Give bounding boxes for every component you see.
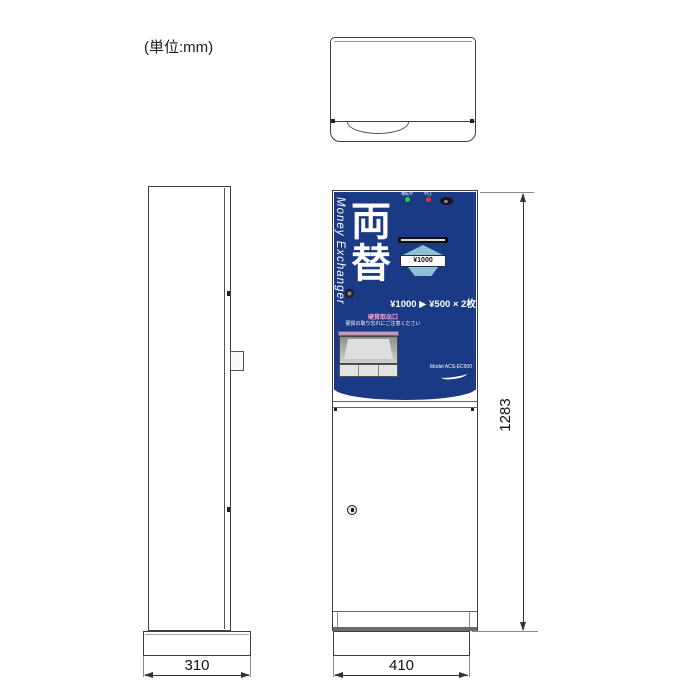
exchange-title-text: 両替 (347, 200, 387, 290)
panel-button-center (348, 292, 351, 295)
dim-1283-ext-bottom (472, 631, 538, 632)
dim-1283-value: 1283 (497, 393, 515, 437)
door-keyhole-slot (351, 508, 354, 512)
bill-slot-slit (401, 239, 445, 241)
dim-1283-arrow-top (520, 193, 526, 202)
coin-outlet-note: 硬貨の取り忘れにご注意ください (333, 320, 433, 327)
dim-410-value: 410 (333, 657, 470, 674)
led-stop-indicator (426, 197, 431, 202)
exchange-rate-text: ¥1000 ▶ ¥500 × 2枚 (388, 296, 478, 310)
side-view-latch-mark-upper (227, 291, 230, 296)
door-corner-mark-right (471, 408, 474, 411)
side-view-body-outline (148, 186, 231, 631)
dim-1283-line (523, 194, 524, 630)
door-bottom-line (333, 611, 477, 612)
coin-tray-opening (344, 339, 393, 359)
top-view-band-tick-left (331, 119, 335, 123)
dim-310-arrow-left (144, 672, 153, 678)
dim-1283-arrow-bottom (520, 622, 526, 631)
front-base-outline (333, 631, 470, 656)
door-corner-mark-left (334, 408, 337, 411)
plinth-left-line (337, 612, 338, 627)
dim-410-line (335, 675, 468, 676)
side-view-latch-mark-lower (227, 507, 230, 512)
bill-label-plate: ¥1000 (400, 255, 446, 267)
dim-310-arrow-right (241, 672, 250, 678)
dim-410-arrow-left (334, 672, 343, 678)
side-view-coin-tray-protrusion (230, 351, 244, 371)
panel-lock-keyway (444, 200, 448, 203)
plinth-right-line (469, 612, 470, 627)
front-mid-band (333, 401, 477, 408)
dim-410-arrow-right (459, 672, 468, 678)
side-view-base-top-line (145, 634, 249, 635)
coin-tray-cell-divider-2 (378, 365, 379, 376)
coin-tray-cells (339, 364, 398, 377)
side-view-front-edge-line (224, 188, 225, 629)
led-run-indicator (405, 197, 410, 202)
technical-drawing-canvas: (単位:mm) 310 Money Exchanger (0, 0, 700, 700)
dim-310-value: 310 (143, 657, 251, 674)
top-view-band-tick-right (470, 119, 474, 123)
coin-tray-cell-divider-1 (358, 365, 359, 376)
unit-label: (単位:mm) (144, 36, 213, 57)
top-view-inner-edge-line (334, 41, 472, 42)
dim-310-line (145, 675, 249, 676)
model-number-text: Model ACS-EC500 (418, 364, 472, 370)
